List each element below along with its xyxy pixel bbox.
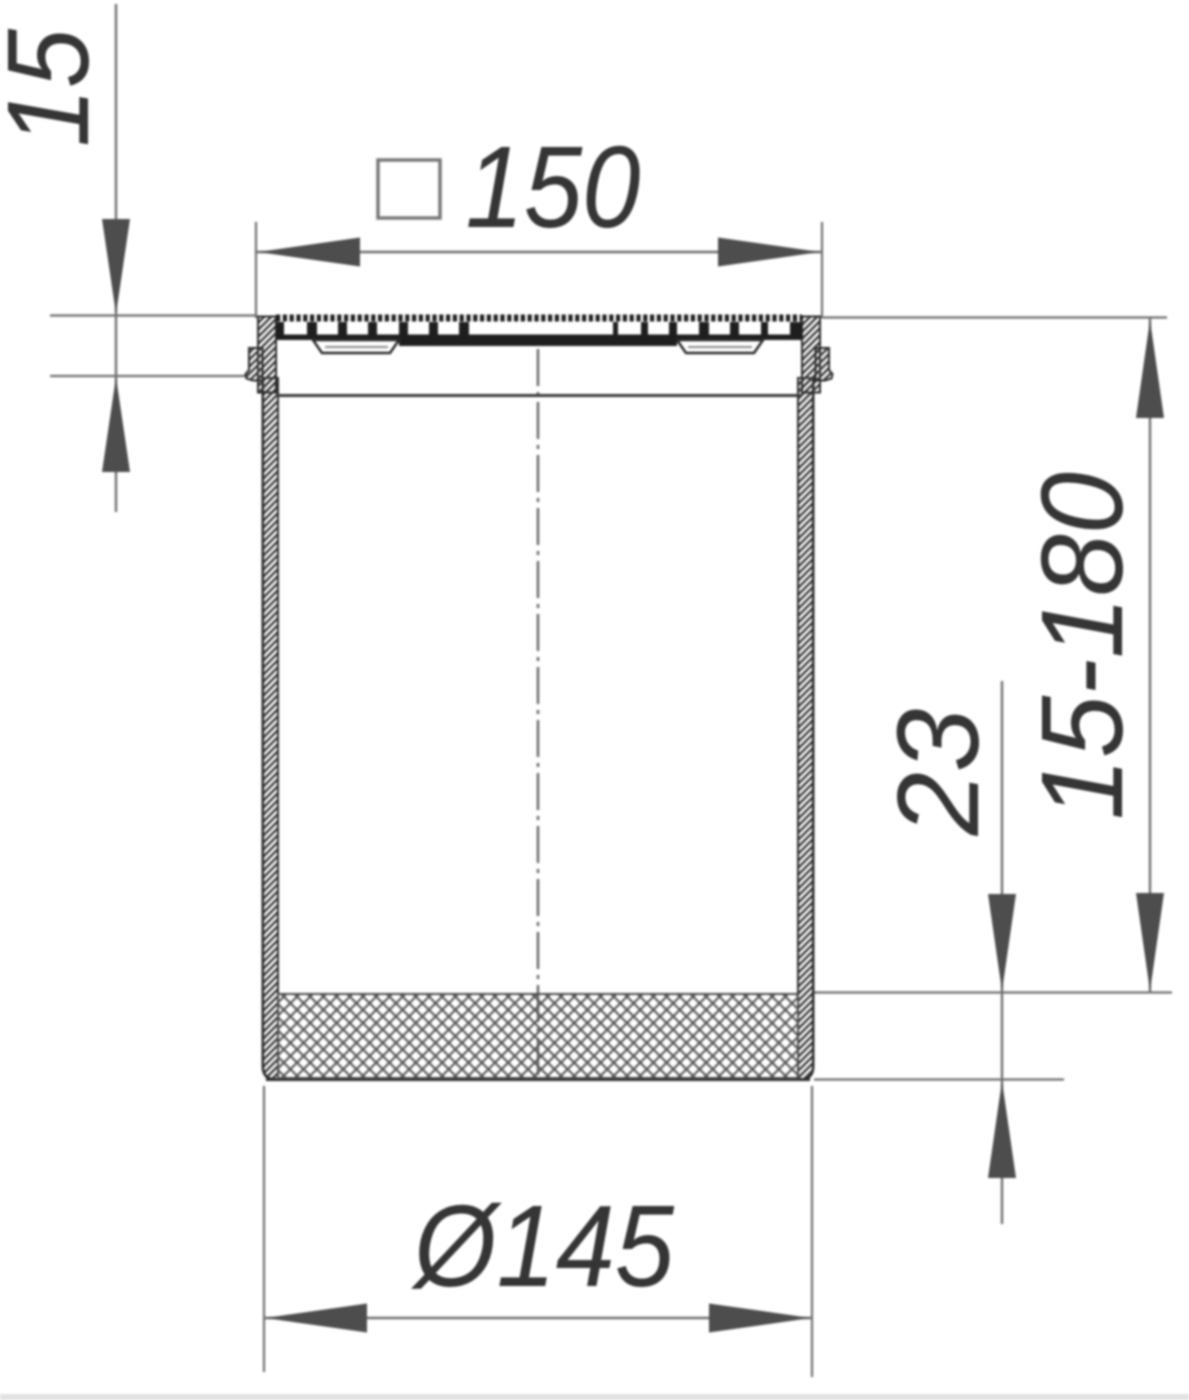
svg-text:15: 15 — [0, 29, 113, 147]
svg-text:15-180: 15-180 — [1017, 472, 1147, 820]
svg-text:Ø145: Ø145 — [410, 1181, 674, 1311]
svg-text:150: 150 — [466, 122, 641, 252]
svg-text:23: 23 — [873, 709, 1003, 837]
